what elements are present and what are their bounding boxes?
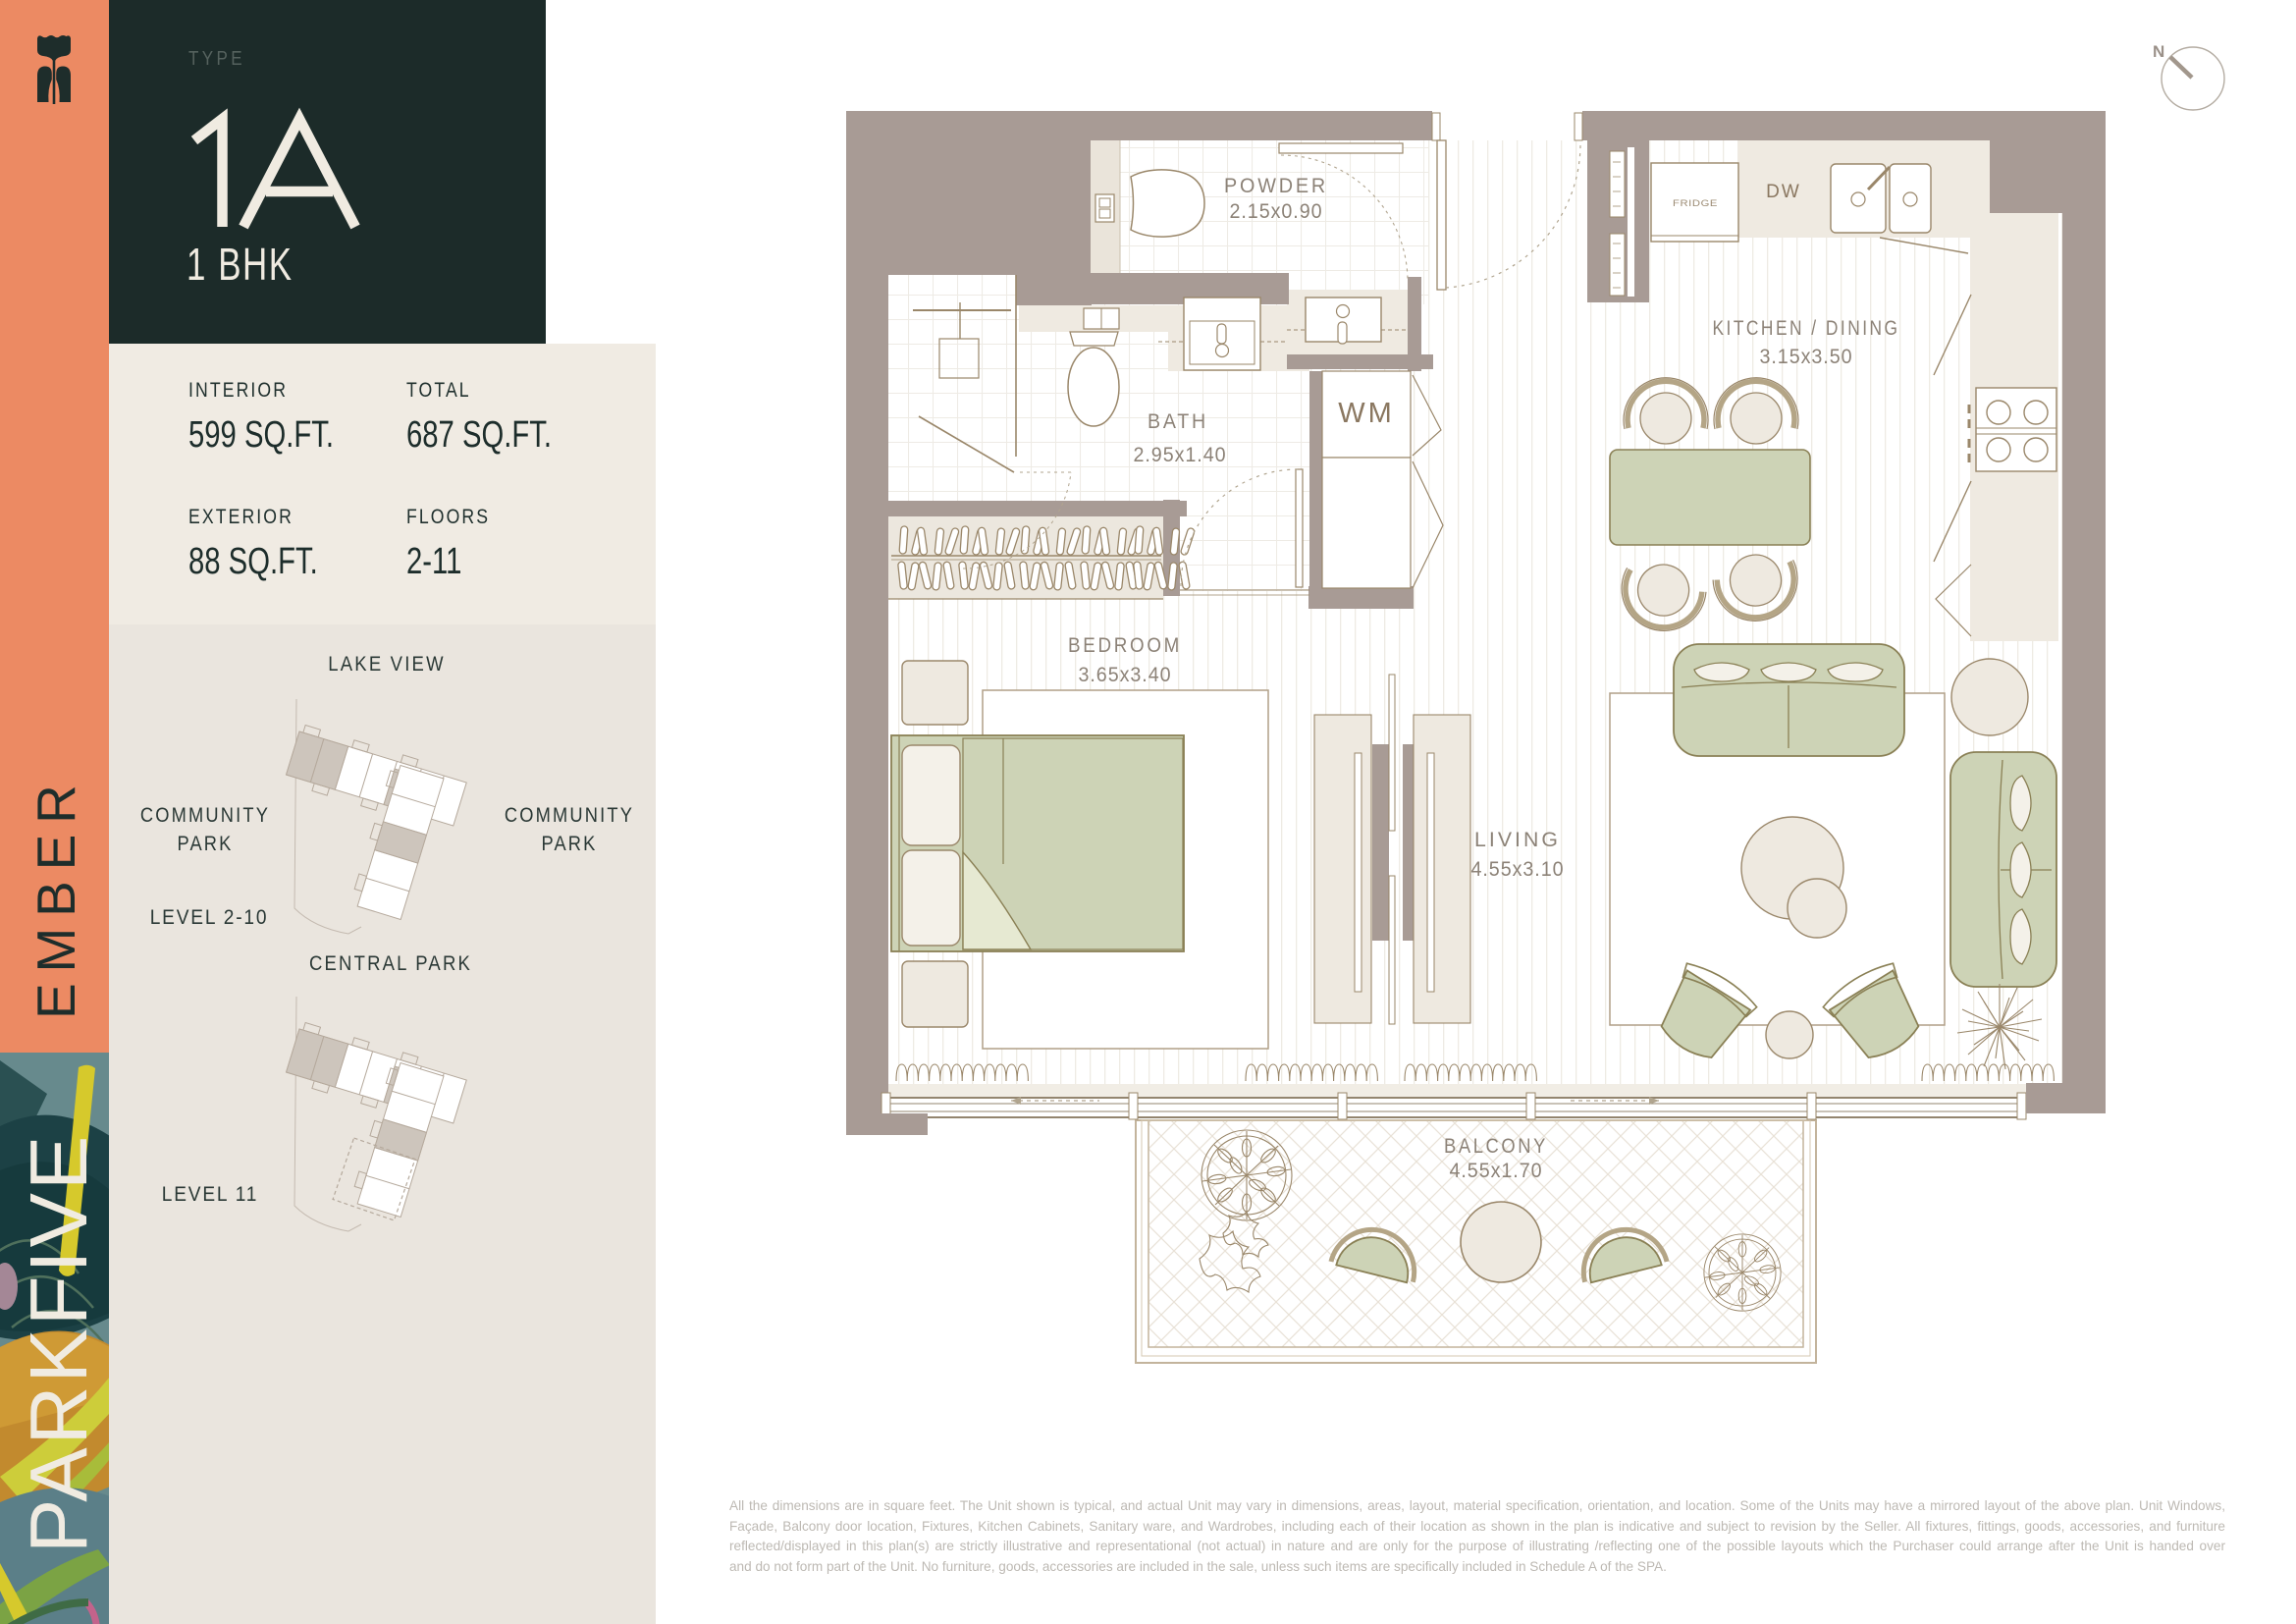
- svg-text:POWDER: POWDER: [1224, 175, 1328, 197]
- svg-text:FRIDGE: FRIDGE: [1673, 198, 1718, 209]
- svg-text:PARKFIVE: PARKFIVE: [13, 1133, 104, 1553]
- svg-text:LIVING: LIVING: [1474, 829, 1561, 851]
- svg-text:WM: WM: [1338, 398, 1395, 429]
- svg-text:BALCONY: BALCONY: [1444, 1135, 1548, 1158]
- svg-text:BEDROOM: BEDROOM: [1068, 634, 1182, 657]
- svg-text:4.55x3.10: 4.55x3.10: [1471, 858, 1565, 881]
- svg-text:DW: DW: [1766, 182, 1801, 202]
- svg-text:N: N: [2153, 42, 2164, 61]
- svg-text:BATH: BATH: [1148, 410, 1208, 433]
- svg-text:EMBER: EMBER: [26, 774, 86, 1019]
- svg-text:3.65x3.40: 3.65x3.40: [1079, 664, 1172, 686]
- svg-text:2.95x1.40: 2.95x1.40: [1134, 444, 1227, 466]
- svg-text:4.55x1.70: 4.55x1.70: [1450, 1160, 1543, 1182]
- svg-text:3.15x3.50: 3.15x3.50: [1760, 346, 1853, 368]
- svg-text:KITCHEN / DINING: KITCHEN / DINING: [1713, 317, 1900, 340]
- svg-text:2.15x0.90: 2.15x0.90: [1230, 200, 1323, 223]
